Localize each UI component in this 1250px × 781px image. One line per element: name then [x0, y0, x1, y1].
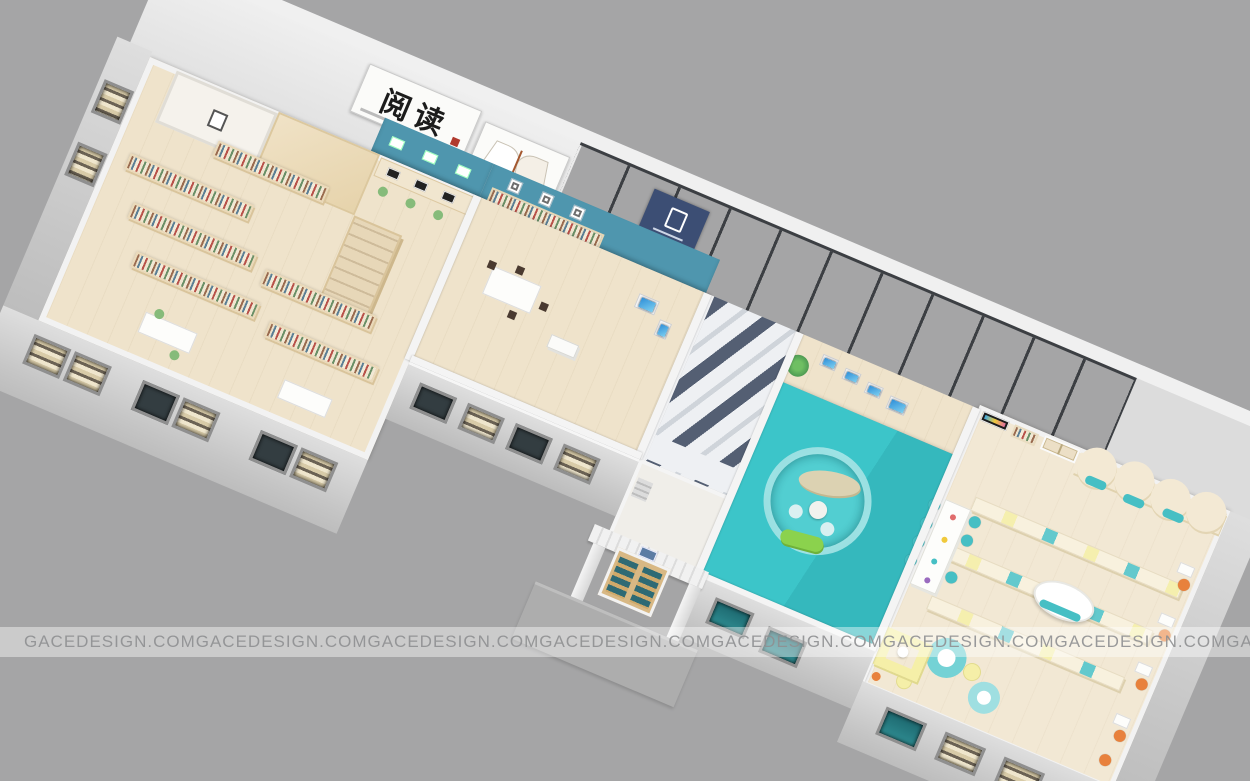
window: [934, 732, 986, 777]
watermark-text: GACEDESIGN.COM: [1226, 632, 1250, 652]
watermark-text: GACEDESIGN.COM: [368, 632, 540, 652]
window: [457, 403, 505, 444]
table-decor: [941, 536, 949, 544]
window: [171, 397, 220, 442]
monitor: [413, 179, 428, 192]
window: [131, 380, 180, 425]
monitor: [441, 191, 456, 204]
table-decor: [923, 576, 931, 584]
window: [409, 382, 457, 423]
kiosk-screen: [867, 385, 881, 396]
window: [289, 447, 338, 492]
kiosk-screen: [657, 324, 669, 337]
pit-stool: [787, 502, 805, 520]
monitor: [385, 167, 400, 180]
window: [993, 757, 1045, 781]
kiosk-screen: [638, 297, 656, 312]
logo-book-icon: [664, 207, 689, 233]
picture-frame: [506, 178, 523, 195]
window: [553, 443, 601, 484]
render-canvas: 阅读: [0, 0, 1250, 781]
picture-frame: [538, 191, 555, 208]
watermark-text: GACEDESIGN.COM: [1055, 632, 1227, 652]
kiosk-screen: [822, 358, 836, 369]
watermark-text: GACEDESIGN.COM: [539, 632, 711, 652]
picture-frame: [569, 204, 586, 221]
wall-monitor: [388, 136, 405, 151]
small-picture: [207, 109, 229, 132]
wall-monitor: [455, 164, 472, 179]
pit-table: [806, 498, 830, 522]
window: [249, 430, 298, 475]
window: [63, 351, 112, 396]
wall-monitor: [422, 150, 439, 165]
pit-stool: [818, 520, 836, 538]
watermark-text: GACEDESIGN.COM: [711, 632, 883, 652]
watermark-text: GACEDESIGN.COM: [196, 632, 368, 652]
door-split: [1057, 444, 1063, 455]
table-decor: [949, 513, 957, 521]
watermark-text: GACEDESIGN.COM: [883, 632, 1055, 652]
window: [22, 334, 71, 379]
window: [875, 707, 927, 752]
window: [505, 423, 553, 464]
watermark-text: GACEDESIGN.COM: [24, 632, 196, 652]
pit-bench: [797, 467, 862, 500]
table-decor: [930, 558, 938, 566]
watermark-band: GACEDESIGN.COM GACEDESIGN.COM GACEDESIGN…: [0, 627, 1250, 657]
kiosk-screen: [845, 372, 859, 383]
